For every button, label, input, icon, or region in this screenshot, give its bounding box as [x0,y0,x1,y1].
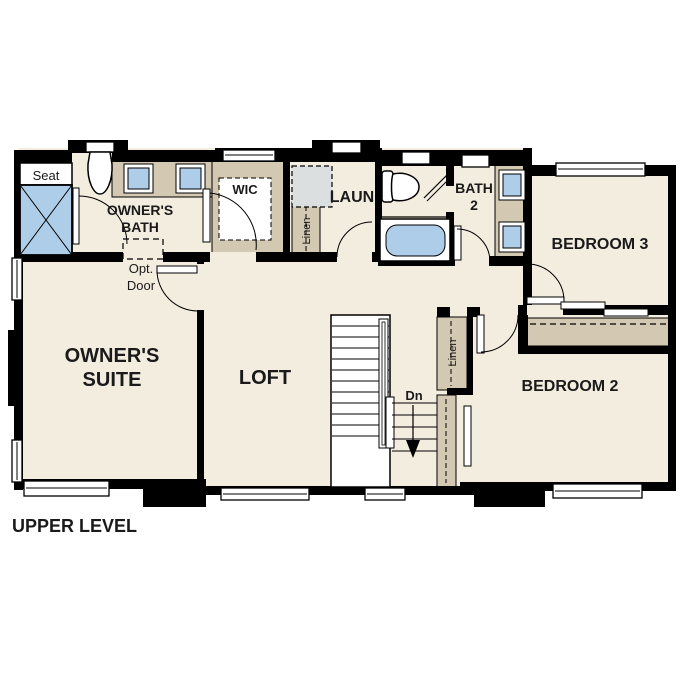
opening-owners-suite-door [197,264,204,310]
stair-railing-lower [386,397,394,448]
wic-door-leaf [203,189,210,242]
laundry-label: LAUN [330,189,374,206]
bedroom2-label: BEDROOM 2 [522,378,619,395]
opening-wic-door [210,252,256,262]
bedroom2-closet-door-leaf [464,406,471,466]
window-laundry [332,142,361,153]
stairs-down-label: Dn [405,388,422,403]
wall-top-shower [14,150,72,163]
linen-laundry-label: Linen [301,218,313,245]
linen-hall-label: Linen [447,340,459,367]
owners-bath-label-line1: OWNER'S [107,202,173,218]
seat-label: Seat [33,168,60,183]
plan-title: UPPER LEVEL [12,516,137,536]
opt-door-label-line1: Opt. [129,261,154,276]
bath2-tub [380,219,450,261]
floorplan-canvas: OWNER'S SUITE LOFT OWNER'S BATH WIC LAUN… [0,0,687,687]
bedroom3-closet-slider-right [604,309,648,316]
wall-wic-laundry-divider [283,148,290,262]
washer-dryer-space [292,166,332,207]
bath2-label-line1: BATH [455,180,493,196]
bedroom3-closet [527,318,670,346]
owners-bath-sink-left [124,164,153,193]
owners-bath-sink-right [176,164,205,193]
wall-top-vanity [112,150,215,162]
window-bath2-right [462,155,489,167]
wall-bottom-bump-right [474,489,545,507]
opt-door-label-line2: Door [127,278,156,293]
owners-suite-label-line2: SUITE [83,369,142,391]
bath2-door-leaf [454,226,461,260]
wic-label: WIC [232,182,258,197]
owners-suite-door-leaf [157,266,197,273]
wall-right [668,165,676,491]
wall-bedroom2-left [467,315,473,391]
opening-laundry-door [337,252,372,262]
shower [20,185,72,255]
floorplan-svg: OWNER'S SUITE LOFT OWNER'S BATH WIC LAUN… [0,0,687,687]
wall-toilet-room-right [446,158,454,186]
wall-hall-jog [447,388,473,395]
shower-door-leaf [73,188,79,244]
owners-bath-toilet [88,152,112,194]
window-owners-bath [86,142,114,152]
bedroom3-closet-slider-left [561,302,605,309]
opening-bedroom3-door [527,305,563,315]
owners-suite-label-line1: OWNER'S [65,345,160,367]
wall-bottom-bump-left [143,484,206,507]
loft-label: LOFT [239,367,291,389]
bedroom2-door-leaf [477,315,484,353]
wall-hall-stub-left [437,307,450,317]
bedroom3-label: BEDROOM 3 [552,236,649,253]
wall-top-bath2 [378,150,532,166]
owners-bath-label-line2: BATH [121,219,159,235]
wall-bedroom3-closet-bottom [518,346,676,354]
wall-left-bump [8,330,22,406]
bath2-label-line2: 2 [470,197,478,213]
window-bath2-left [402,152,430,164]
bath2-sink-bottom [499,222,525,252]
bath2-sink-top [499,170,525,200]
bedroom3-door-leaf [527,297,564,304]
